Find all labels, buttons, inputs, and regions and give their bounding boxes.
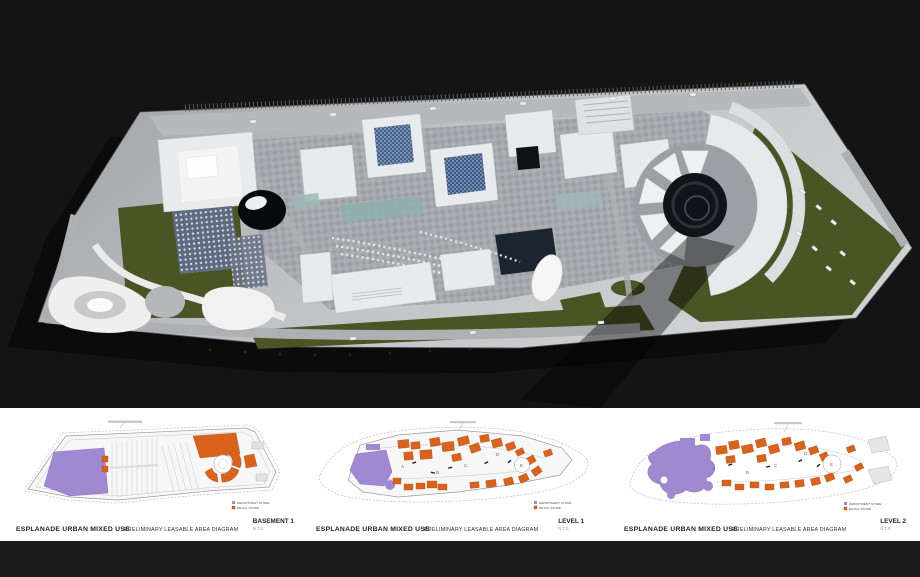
legend-department-store: DEPARTMENT STORE xyxy=(539,501,571,505)
diagram-band: DEPARTMENT STORE RETAIL STORE ESPLANADE … xyxy=(0,408,920,541)
diagram-title: PRELIMINARY LEASABLE AREA DIAGRAM xyxy=(732,527,846,533)
project-title: ESPLANADE URBAN MIXED USE xyxy=(624,526,738,533)
svg-text:D: D xyxy=(804,451,808,456)
level-name: LEVEL 1 xyxy=(558,518,584,526)
project-title: ESPLANADE URBAN MIXED USE xyxy=(316,526,430,533)
diagram-title: PRELIMINARY LEASABLE AREA DIAGRAM xyxy=(424,527,538,533)
department-store-area xyxy=(44,448,108,496)
project-title: ESPLANADE URBAN MIXED USE xyxy=(16,526,130,533)
dark-cube xyxy=(516,146,540,170)
annotation-leader xyxy=(108,421,142,429)
plan-legend: DEPARTMENT STORE RETAIL STORE xyxy=(534,501,571,510)
level-label-block: LEVEL 1 N.T.S. xyxy=(558,518,584,531)
annotation-leader xyxy=(774,422,802,432)
scale-note: N.T.S. xyxy=(558,526,584,531)
level-1-plan: A B C D E DEPARTMENT STORE RETAIL STORE xyxy=(308,420,608,520)
svg-text:A: A xyxy=(712,466,716,471)
basement-1-plan: DEPARTMENT STORE RETAIL STORE xyxy=(8,420,304,520)
level-name: BASEMENT 1 xyxy=(253,518,294,526)
svg-text:C: C xyxy=(774,463,778,468)
level-name: LEVEL 2 xyxy=(880,518,906,526)
level-label-block: BASEMENT 1 N.T.S. xyxy=(253,518,294,531)
department-store-area xyxy=(648,434,715,499)
legend-department-store: DEPARTMENT STORE xyxy=(237,501,269,505)
panel-basement-1: DEPARTMENT STORE RETAIL STORE ESPLANADE … xyxy=(8,408,304,541)
svg-text:B: B xyxy=(746,470,749,475)
level-2-plan: A B C D E DEPARTMENT STORE RETAIL STORE xyxy=(616,420,916,520)
site-aerial-render xyxy=(0,0,920,410)
bottom-black-strip xyxy=(0,541,920,577)
svg-text:E: E xyxy=(830,462,833,467)
diagram-title: PRELIMINARY LEASABLE AREA DIAGRAM xyxy=(124,527,238,533)
presentation-board: DEPARTMENT STORE RETAIL STORE ESPLANADE … xyxy=(0,0,920,577)
legend-retail-store: RETAIL STORE xyxy=(539,506,561,510)
scale-note: N.T.S. xyxy=(253,526,294,531)
east-fan-structures xyxy=(868,436,892,484)
plan-legend: DEPARTMENT STORE RETAIL STORE xyxy=(844,502,881,511)
legend-department-store: DEPARTMENT STORE xyxy=(849,502,881,506)
legend-retail-store: RETAIL STORE xyxy=(849,507,871,511)
scale-note: N.T.S. xyxy=(880,526,906,531)
level-label-block: LEVEL 2 N.T.S. xyxy=(880,518,906,531)
pond xyxy=(238,190,286,230)
panel-level-2: A B C D E DEPARTMENT STORE RETAIL STORE … xyxy=(616,408,916,541)
panel-level-1: A B C D E DEPARTMENT STORE RETAIL STORE … xyxy=(308,408,608,541)
svg-text:B: B xyxy=(436,470,439,475)
legend-retail-store: RETAIL STORE xyxy=(237,506,259,510)
plan-legend: DEPARTMENT STORE RETAIL STORE xyxy=(232,501,269,510)
annotation-leader xyxy=(450,421,476,429)
svg-text:E: E xyxy=(520,463,523,468)
